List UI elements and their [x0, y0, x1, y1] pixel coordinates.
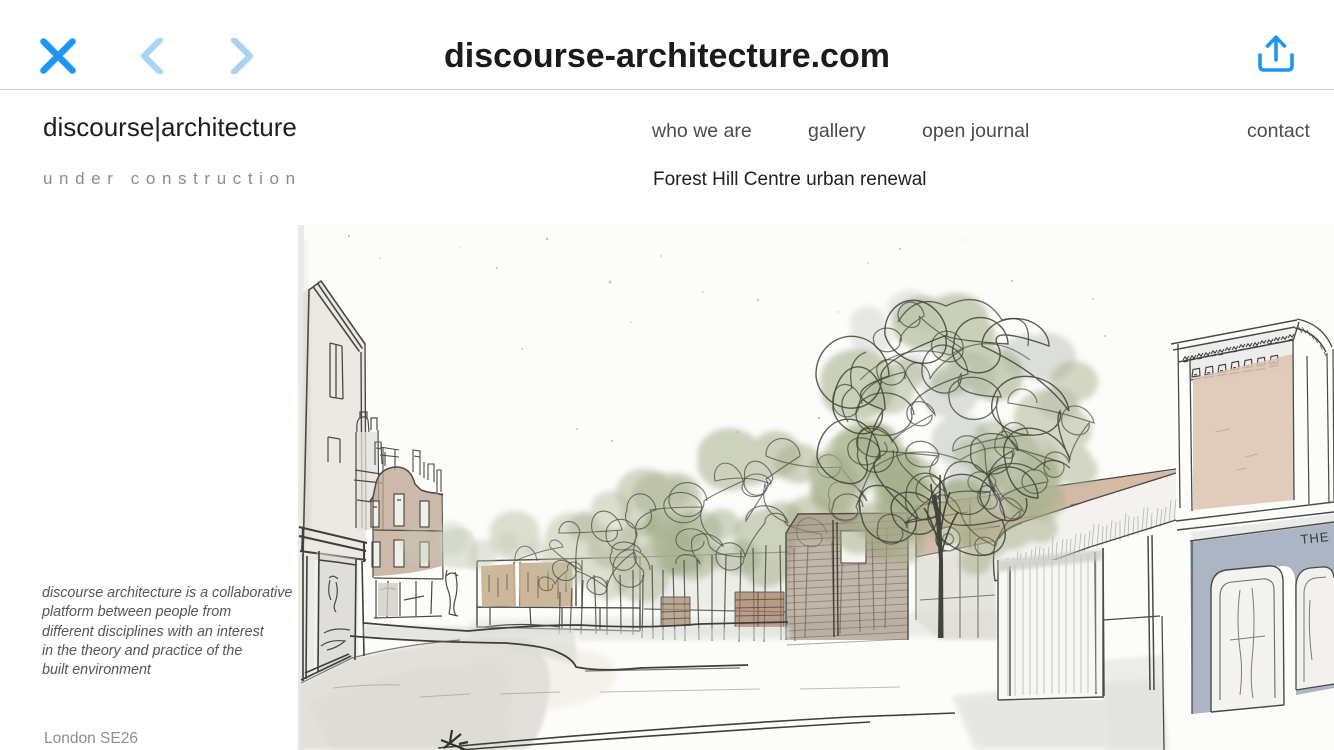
svg-text:THE: THE: [1300, 529, 1330, 547]
